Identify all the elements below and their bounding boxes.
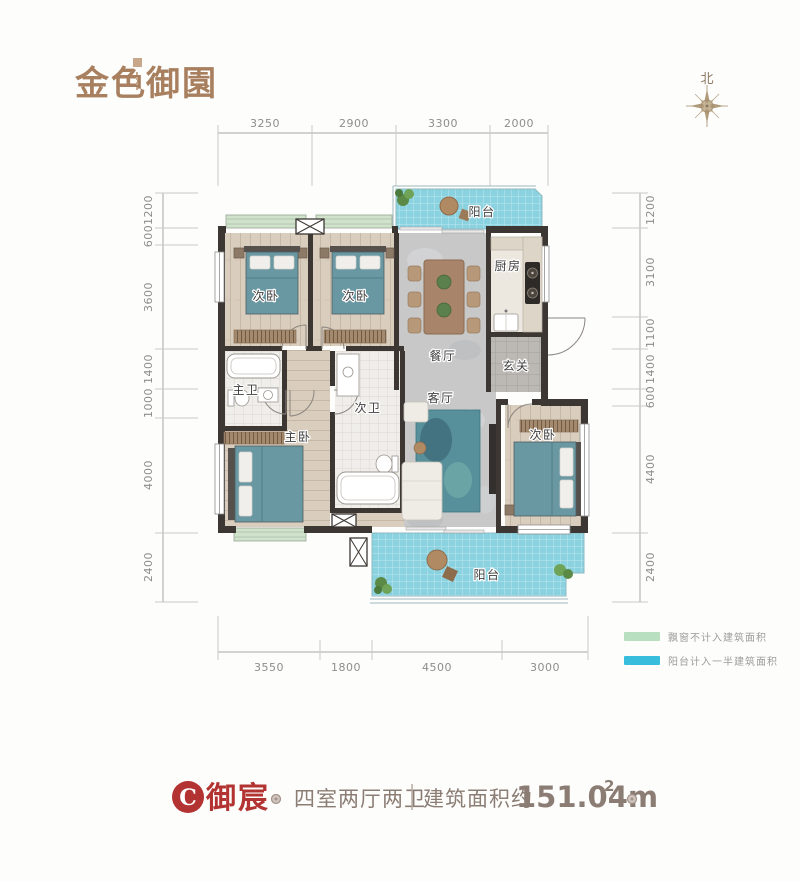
ornament-dot-icon bbox=[272, 795, 281, 804]
dim-right-2: 1100 bbox=[644, 318, 657, 348]
window-bedroom-c-bottom bbox=[518, 525, 570, 534]
dim-top-2: 3300 bbox=[428, 117, 458, 130]
dimensions-right: 1200 3100 1100 1400 600 4400 2400 bbox=[612, 193, 657, 602]
room-label-master-bath: 主卫 bbox=[232, 383, 259, 397]
room-label-bedroom-c: 次卧 bbox=[529, 428, 556, 442]
dim-right-3: 1400 bbox=[644, 354, 657, 384]
room-label-kitchen: 厨房 bbox=[494, 258, 521, 273]
wardrobe-bedroom-b bbox=[324, 330, 386, 343]
dim-bottom-3: 3000 bbox=[530, 661, 560, 674]
table-icon bbox=[427, 550, 447, 570]
dim-left-4: 1000 bbox=[142, 388, 155, 418]
dimensions-top: 3250 2900 3300 2000 bbox=[218, 117, 548, 186]
room-label-master-bedroom: 主卧 bbox=[284, 430, 311, 444]
bathtub bbox=[337, 472, 399, 504]
room-label-second-bath: 次卫 bbox=[354, 401, 381, 415]
dimensions-left: 1200 600 3600 1400 1000 4000 2400 bbox=[142, 193, 198, 602]
toilet bbox=[376, 455, 392, 473]
logo-text-2: 御園 bbox=[145, 64, 218, 104]
ornament-dot-icon bbox=[628, 795, 637, 804]
dimensions-bottom: 3550 1800 4500 3000 bbox=[218, 616, 588, 674]
legend-label-balcony: 阳台计入一半建筑面积 bbox=[668, 655, 778, 668]
room-label-living: 客厅 bbox=[427, 390, 454, 405]
dining-table bbox=[424, 260, 464, 334]
dim-top-1: 2900 bbox=[339, 117, 369, 130]
floorplan-page: 金色 御園 北 3250 2900 3300 2000 bbox=[0, 0, 800, 882]
wardrobe-bedroom-a bbox=[234, 330, 296, 343]
unit-name: 御宸 bbox=[205, 781, 270, 816]
dim-left-0: 1200 bbox=[142, 195, 155, 225]
dim-left-6: 2400 bbox=[142, 552, 155, 582]
column-x-icon bbox=[332, 514, 356, 527]
compass-rose-icon bbox=[686, 85, 728, 127]
unit-badge-letter: C bbox=[179, 785, 197, 811]
dim-bottom-0: 3550 bbox=[254, 661, 284, 674]
room-label-bedroom-b: 次卧 bbox=[342, 289, 369, 303]
wardrobe-master bbox=[224, 432, 284, 444]
dim-left-5: 4000 bbox=[142, 460, 155, 490]
room-label-foyer: 玄关 bbox=[502, 358, 529, 373]
armchair bbox=[404, 402, 428, 422]
dim-top-3: 2000 bbox=[504, 117, 534, 130]
table-icon bbox=[440, 197, 458, 215]
legend-label-bay-window: 飘窗不计入建筑面积 bbox=[668, 631, 767, 644]
dim-right-6: 2400 bbox=[644, 552, 657, 582]
room-label-balcony-bottom: 阳台 bbox=[473, 567, 500, 582]
floor-master-entry bbox=[286, 350, 330, 430]
dim-top-0: 3250 bbox=[250, 117, 280, 130]
dim-bottom-2: 4500 bbox=[422, 661, 452, 674]
title-block: C 御宸 四室两厅两卫 建筑面积约 151.04m 2 bbox=[172, 777, 658, 816]
dining-set bbox=[408, 260, 480, 334]
unit-layout: 四室两厅两卫 bbox=[294, 787, 426, 811]
dim-right-1: 3100 bbox=[644, 257, 657, 287]
floorplan-canvas: 金色 御園 北 3250 2900 3300 2000 bbox=[0, 0, 800, 882]
dim-bottom-1: 1800 bbox=[331, 661, 361, 674]
area-value: 151.04m bbox=[516, 780, 658, 814]
legend-swatch-balcony bbox=[624, 656, 660, 665]
window-bedroom-c bbox=[580, 424, 589, 516]
room-label-balcony-top: 阳台 bbox=[468, 204, 495, 219]
dim-right-0: 1200 bbox=[644, 195, 657, 225]
column-x-icon bbox=[350, 538, 367, 566]
column-x-icon bbox=[296, 219, 324, 234]
side-table bbox=[414, 442, 426, 454]
room-label-dining: 餐厅 bbox=[429, 348, 456, 363]
dim-right-5: 4400 bbox=[644, 454, 657, 484]
window-left-upper bbox=[215, 252, 224, 302]
dim-left-2: 3600 bbox=[142, 282, 155, 312]
vanity bbox=[337, 354, 359, 396]
area-superscript: 2 bbox=[604, 777, 614, 795]
compass: 北 bbox=[686, 72, 728, 127]
legend: 飘窗不计入建筑面积 阳台计入一半建筑面积 bbox=[624, 631, 778, 668]
window-left-lower bbox=[215, 444, 224, 514]
dim-right-4: 600 bbox=[644, 386, 657, 409]
sofa bbox=[402, 462, 442, 520]
brand-logo: 金色 御園 bbox=[74, 58, 218, 104]
dim-left-1: 600 bbox=[142, 225, 155, 248]
dim-left-3: 1400 bbox=[142, 354, 155, 384]
tv-console bbox=[489, 424, 496, 494]
compass-north-label: 北 bbox=[700, 72, 713, 87]
floorplan: 次卧 次卧 餐厅 客厅 厨房 玄关 阳台 阳台 主卫 次卫 主卧 次卧 bbox=[215, 186, 589, 603]
room-label-bedroom-a: 次卧 bbox=[252, 289, 279, 303]
legend-swatch-bay-window bbox=[624, 632, 660, 641]
